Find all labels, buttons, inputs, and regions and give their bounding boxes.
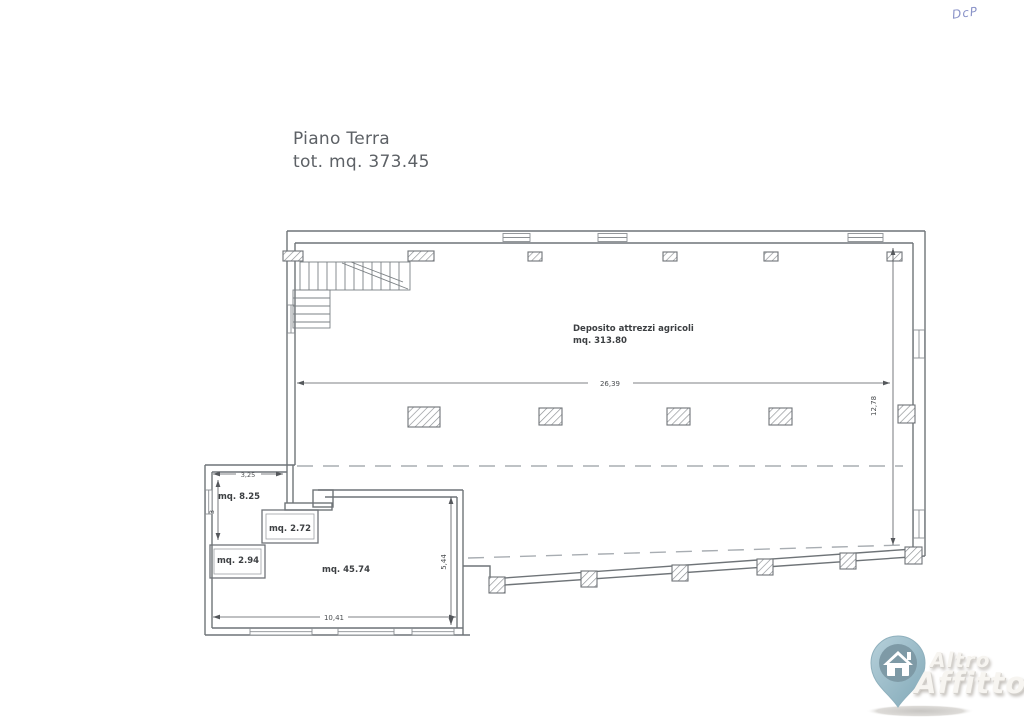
floor-plan-drawing: Deposito attrezzi agricoli mq. 313.80 mq… xyxy=(0,0,1024,724)
dashed-lines xyxy=(297,466,903,558)
room-area-8-25: mq. 8.25 xyxy=(218,492,260,502)
watermark-logo: Altro Affitto xyxy=(856,630,1020,720)
room-area-2-72: mq. 2.72 xyxy=(269,524,311,534)
dim-storage-height: 3 xyxy=(208,510,216,514)
dim-annex-width: 10,41 xyxy=(324,614,344,622)
dim-annex-height: 5,44 xyxy=(440,554,448,570)
plan-labels: Deposito attrezzi agricoli mq. 313.80 mq… xyxy=(217,324,694,575)
floor-plan-page: Piano Terra tot. mq. 373.45 DcP xyxy=(0,0,1024,724)
annex-walls xyxy=(205,465,470,635)
hall-walls xyxy=(287,231,925,586)
room-label-deposito: Deposito attrezzi agricoli xyxy=(573,324,694,334)
room-area-2-94: mq. 2.94 xyxy=(217,556,259,566)
dim-hall-height: 12,78 xyxy=(870,396,878,416)
dimension-lines xyxy=(213,248,893,625)
annex-partitions xyxy=(210,510,318,578)
pin-shadow xyxy=(866,705,974,717)
logo-text-line-2: Affitto xyxy=(914,669,1024,698)
pillars xyxy=(283,251,922,593)
room-area-deposito: mq. 313.80 xyxy=(573,336,627,346)
dim-storage-width: 3,25 xyxy=(241,471,255,479)
room-area-45-74: mq. 45.74 xyxy=(322,565,370,575)
dim-hall-width: 26,39 xyxy=(600,380,620,388)
staircase xyxy=(293,262,410,328)
